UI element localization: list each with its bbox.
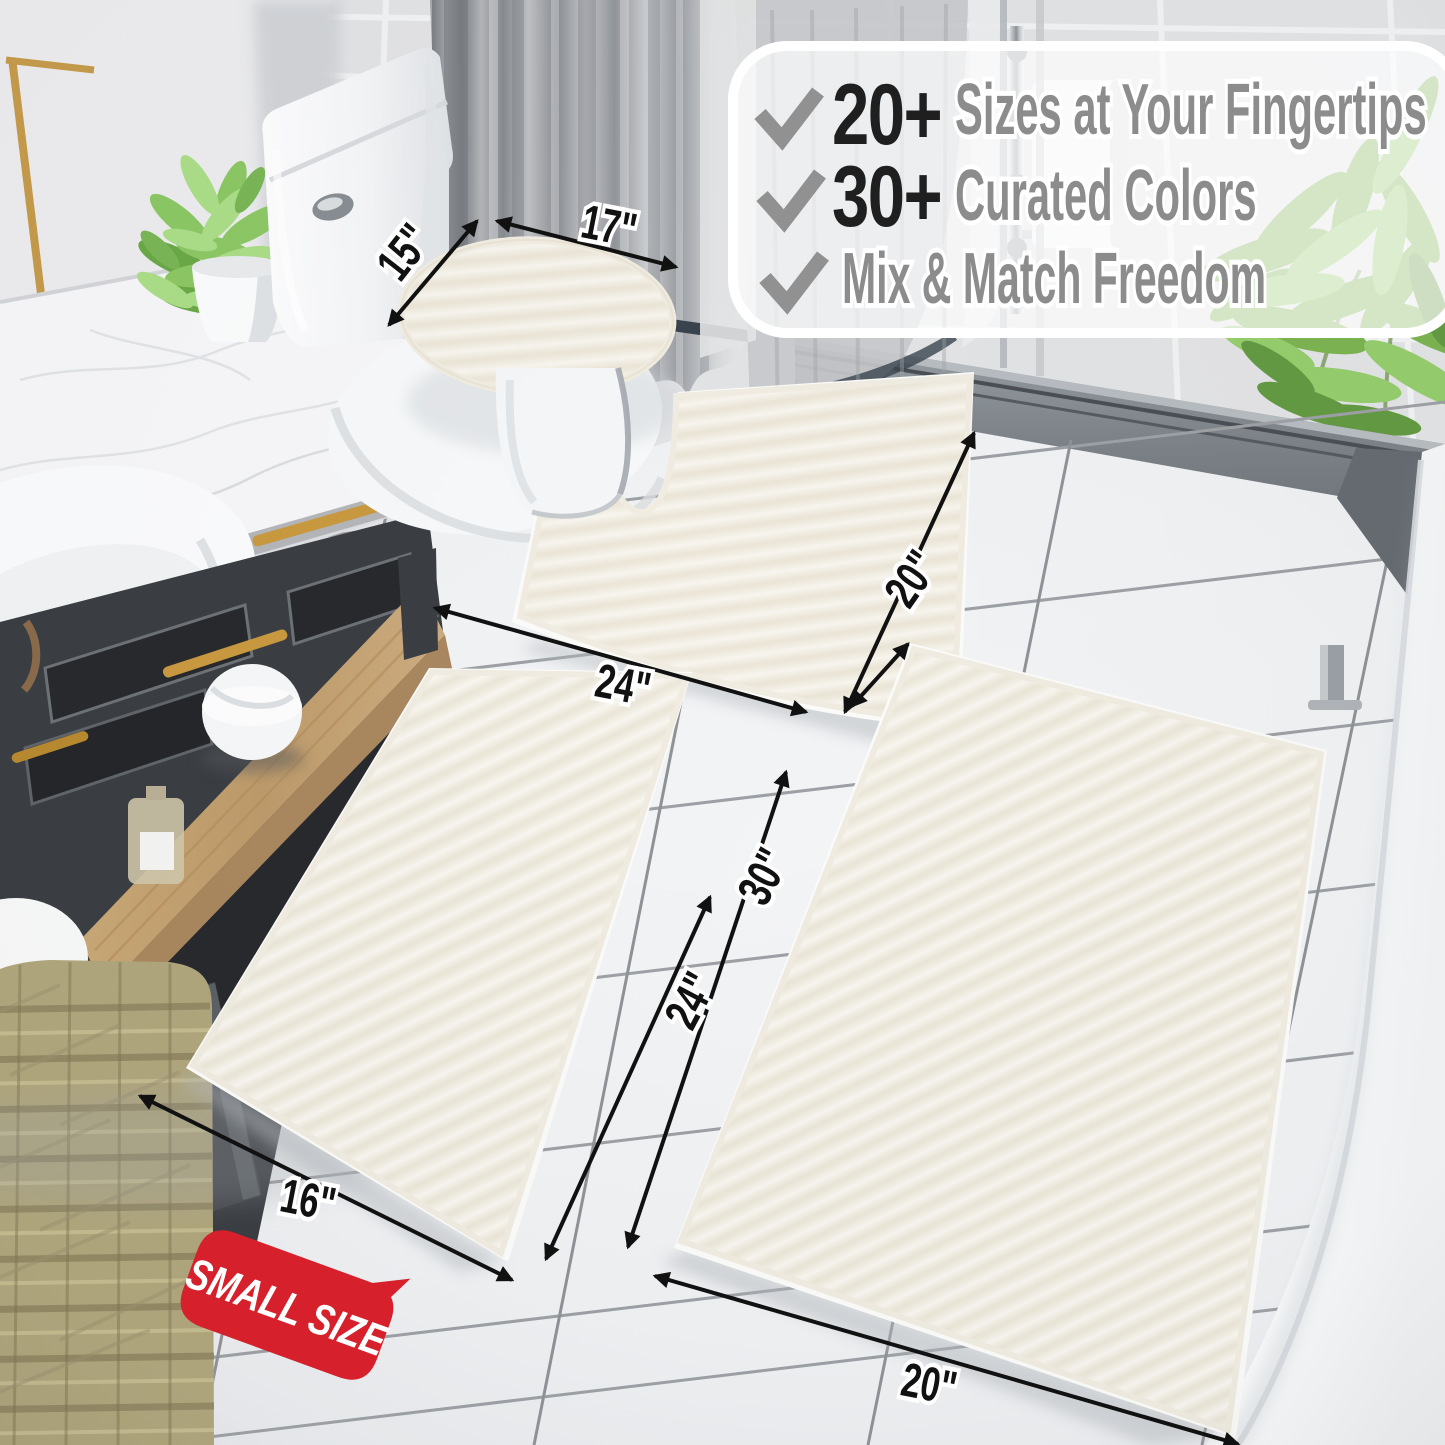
svg-text:17": 17": [577, 194, 641, 257]
svg-text:20": 20": [897, 1352, 961, 1415]
svg-text:Mix & Match Freedom: Mix & Match Freedom: [842, 239, 1266, 319]
svg-text:16": 16": [276, 1168, 340, 1231]
svg-text:Sizes at Your Fingertips: Sizes at Your Fingertips: [955, 70, 1427, 150]
svg-text:Curated Colors: Curated Colors: [955, 156, 1257, 236]
svg-text:24": 24": [591, 653, 655, 716]
svg-text:30+: 30+: [832, 149, 941, 245]
